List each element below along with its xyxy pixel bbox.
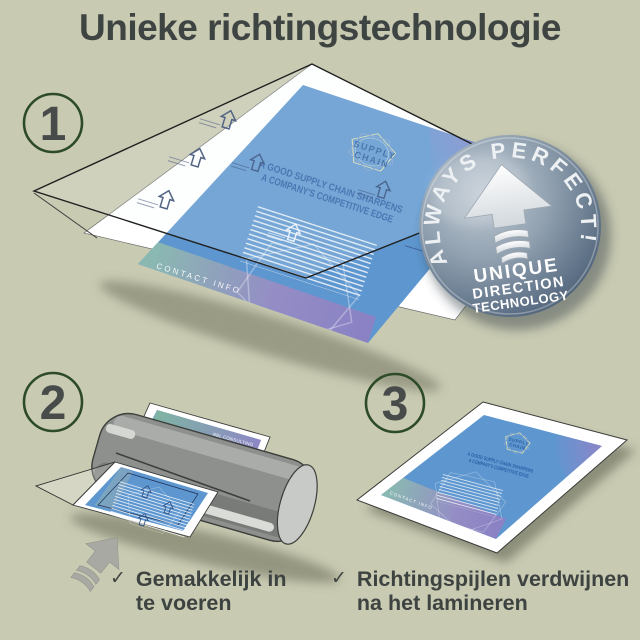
illustration-canvas: SUPPLY CHAIN BBL CONSULTING A GOOD SUPPL… (0, 0, 640, 640)
caption-line1: Gemakkelijk in (136, 567, 287, 591)
caption-easy-feed: ✓ Gemakkelijk in te voeren (110, 567, 287, 616)
caption-arrows-disappear: ✓ Richtingspijlen verdwijnen na het lami… (331, 567, 629, 616)
checkmark-icon: ✓ (331, 568, 347, 617)
lamination-infographic: SUPPLY CHAIN BBL CONSULTING A GOOD SUPPL… (0, 0, 640, 640)
caption-line1: Richtingspijlen verdwijnen (357, 567, 629, 591)
checkmark-icon: ✓ (110, 568, 126, 617)
step3-number: 3 (382, 378, 409, 431)
step1-number: 1 (40, 98, 67, 151)
step2-number: 2 (40, 377, 67, 430)
caption-text: Gemakkelijk in te voeren (136, 567, 287, 616)
caption-text: Richtingspijlen verdwijnen na het lamine… (357, 567, 629, 616)
caption-line2: te voeren (136, 591, 287, 615)
caption-line2: na het lamineren (357, 591, 629, 615)
page-title: Unieke richtingstechnologie (0, 7, 640, 49)
